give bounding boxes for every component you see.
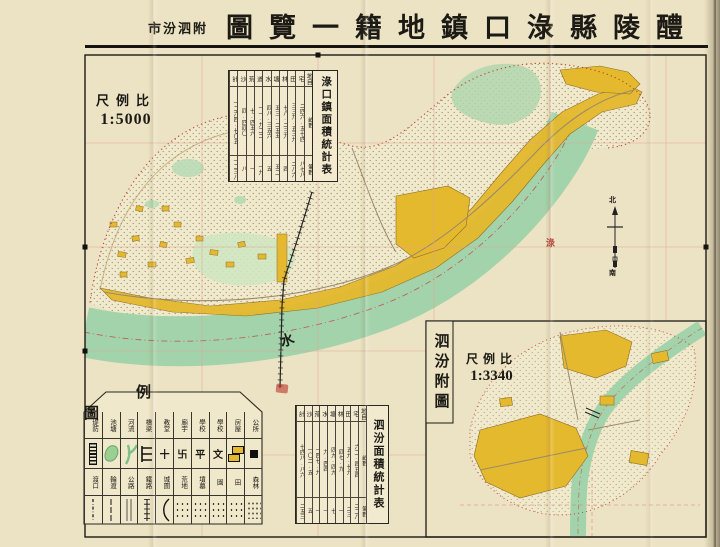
red-seal-mark xyxy=(276,383,289,393)
legend-item-houses: 房屋 xyxy=(226,412,244,468)
legend-item-school-1: 學校平 xyxy=(191,412,209,468)
stats-col: 田五九.七九二三 xyxy=(343,406,351,523)
stats-col: 宅二四六.五七四八七八 xyxy=(295,71,303,181)
legend-item-school-2: 學校文 xyxy=(209,412,227,468)
legend-item-wasteland: 荒地 xyxy=(173,468,191,524)
inset-scale-label: 尺例比 xyxy=(466,350,517,367)
stream-icon xyxy=(121,443,138,465)
legend-item-bridge: 橋梁 xyxy=(137,412,155,468)
stats-col: 地目畝數筆數 xyxy=(304,71,312,181)
legend-item-office: 公所 xyxy=(244,412,262,468)
stats-table-title: 淥口鎮面積統計表 xyxy=(312,71,337,181)
stats-col: 水四八.三五六五 xyxy=(262,71,270,181)
map-title-prefix: 市汾泗附 xyxy=(148,18,208,37)
graves-icon xyxy=(193,501,207,519)
river-label-lu: 淥 xyxy=(546,236,555,249)
compass-north-label: 北 xyxy=(609,195,616,205)
pond xyxy=(145,200,159,208)
ferry-icon xyxy=(106,498,116,522)
stats-col: 荒七.四五六一 xyxy=(246,71,254,181)
main-scale-value: 1:5000 xyxy=(96,111,156,129)
legend-item-pond: 池塘 xyxy=(102,412,120,468)
legend-item-garden: 園 xyxy=(209,468,227,524)
legend-item-ferry-crossing: 渡口 xyxy=(84,468,102,524)
stats-col: 沙四.四四〇八 xyxy=(237,71,245,181)
inset-title: 泗汾附圖 xyxy=(429,325,451,421)
main-scale-label: 尺例比 xyxy=(96,90,156,109)
legend-item-temple: 廟宇卐 xyxy=(173,412,191,468)
stats-col: 荒一四七.九一 xyxy=(312,406,320,523)
compass-south-label: 南 xyxy=(609,268,616,278)
stats-col: 地目畝數筆數 xyxy=(358,406,366,523)
stats-col: 沙一〇二.五五 xyxy=(304,406,312,523)
legend-item-dike: 堤防 xyxy=(84,412,102,468)
inset-scale: 尺例比 1:3340 xyxy=(466,350,517,385)
paddy-icon xyxy=(229,501,243,519)
legend-item-church: 教堂十 xyxy=(155,412,173,468)
stats-col: 計一二六四.七〇五一二三八 xyxy=(229,71,237,181)
dike-icon xyxy=(89,443,97,465)
title-rule xyxy=(85,45,708,48)
stats-table-lukou: 地目畝數筆數 宅二四六.五七四八七八 田三三九.五三九二八六 林七八.二三九四 … xyxy=(228,70,338,182)
stats-col: 塘四九.四九七 xyxy=(327,406,335,523)
garden-icon xyxy=(211,501,225,519)
stats-col: 宅六二.四五四二二八 xyxy=(350,406,358,523)
legend-item-stream: 河流 xyxy=(120,412,138,468)
pond xyxy=(172,159,204,177)
legend-item-railway: 鐵路 xyxy=(137,468,155,524)
wall-icon xyxy=(157,497,173,523)
bridge-icon xyxy=(139,444,155,464)
legend-item-ferry: 輪渡 xyxy=(102,468,120,524)
forest-icon xyxy=(247,501,261,519)
legend-item-paddy: 田 xyxy=(226,468,244,524)
houses-icon xyxy=(228,446,244,462)
legend: 堤防 池塘 河流 橋梁 教堂十 廟宇卐 學校平 學校文 房屋 公所 渡口 輪渡 … xyxy=(84,412,262,524)
ferry-crossing-icon xyxy=(88,498,98,522)
wasteland-icon xyxy=(175,501,189,519)
pond-icon xyxy=(103,444,120,464)
stats-col: 道一一.九二二一九 xyxy=(254,71,262,181)
school-icon: 平 xyxy=(195,446,205,461)
stats-col: 水九.四四一 xyxy=(319,406,327,523)
inset-scale-value: 1:3340 xyxy=(466,368,517,385)
legend-item-forest: 森林 xyxy=(244,468,262,524)
temple-icon: 卐 xyxy=(177,446,187,461)
stats-col: 林四七.九一 xyxy=(335,406,343,523)
railway-icon xyxy=(141,498,153,522)
pond xyxy=(234,196,246,204)
highway-icon xyxy=(123,498,135,522)
legend-item-wall: 城圍 xyxy=(155,468,173,524)
map-title: 圖覽一籍地鎮口淥縣陵醴 xyxy=(226,6,699,45)
stats-table-sifen: 地目畝數筆數 宅六二.四五四二二八 田五九.七九二三 林四七.九一 塘四九.四九… xyxy=(295,405,389,524)
map-sheet: 圖覽一籍地鎮口淥縣陵醴 市汾泗附 尺例比 1:5000 地目畝數筆數 宅二四六.… xyxy=(0,0,720,547)
legend-item-graves: 墳墓 xyxy=(191,468,209,524)
north-arrow xyxy=(607,206,623,268)
stats-col: 計七四八.八六二五三 xyxy=(296,406,304,523)
school-wen-icon: 文 xyxy=(213,446,223,461)
legend-title: 例圖 xyxy=(84,393,262,411)
legend-item-highway: 公路 xyxy=(120,468,138,524)
office-icon xyxy=(250,450,258,458)
stats-table-title: 泗汾面積統計表 xyxy=(366,406,388,523)
main-scale: 尺例比 1:5000 xyxy=(96,90,156,129)
church-cross-icon: 十 xyxy=(160,446,170,461)
stats-col: 林七八.二三九四 xyxy=(279,71,287,181)
stats-col: 田三三九.五三九二八六 xyxy=(287,71,295,181)
stats-col: 塘五三.二五五五二 xyxy=(271,71,279,181)
